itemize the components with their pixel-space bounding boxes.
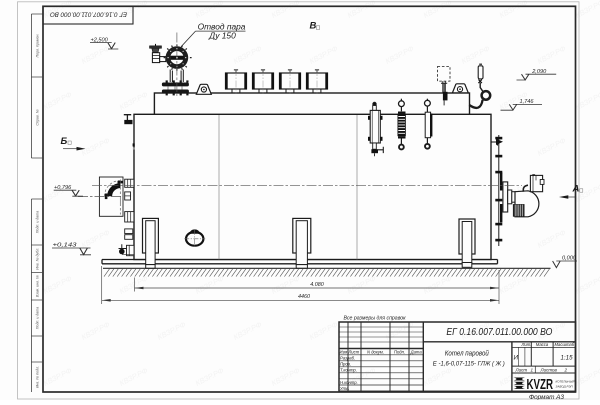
svg-text:Все размеры для справок: Все размеры для справок <box>344 315 407 321</box>
svg-text:КОТЕЛЬНЫЙ: КОТЕЛЬНЫЙ <box>556 379 576 383</box>
svg-text:+0,143: +0,143 <box>53 243 78 249</box>
svg-text:0,000: 0,000 <box>562 255 577 261</box>
svg-text:Утв.: Утв. <box>340 386 350 391</box>
svg-text:Лит.: Лит. <box>521 342 532 347</box>
svg-text:Дата: Дата <box>410 349 423 354</box>
svg-text:N докум.: N докум. <box>367 349 384 354</box>
svg-text:В: В <box>310 21 317 32</box>
svg-text:Ду 150: Ду 150 <box>208 31 236 41</box>
svg-text:ЗАВОД РЭП: ЗАВОД РЭП <box>556 384 574 388</box>
svg-text:1,746: 1,746 <box>520 99 535 105</box>
svg-text:Разраб.: Разраб. <box>340 356 355 361</box>
svg-text:И: И <box>514 355 519 362</box>
svg-text:Подп. и дата: Подп. и дата <box>36 307 40 330</box>
svg-text:Перв. примен.: Перв. примен. <box>36 34 40 58</box>
svg-text:Инв. № дубл.: Инв. № дубл. <box>36 248 40 270</box>
svg-text:ЕГ 0.16.007.011.00.000 ВО: ЕГ 0.16.007.011.00.000 ВО <box>50 11 127 18</box>
svg-text:Лист: Лист <box>515 368 528 373</box>
svg-text:Формат А3: Формат А3 <box>529 394 564 400</box>
svg-text:2: 2 <box>564 368 568 373</box>
svg-text:Масса: Масса <box>536 342 549 347</box>
svg-text:Е -1,6-0,07-115- ГЛЖ ( Ж ): Е -1,6-0,07-115- ГЛЖ ( Ж ) <box>433 361 505 368</box>
svg-text:Т.контр.: Т.контр. <box>340 368 357 373</box>
svg-text:Подп. и дата: Подп. и дата <box>36 211 40 234</box>
svg-text:Котел паровой: Котел паровой <box>445 350 489 358</box>
svg-text:А: А <box>572 184 580 195</box>
svg-text:Справ. №: Справ. № <box>36 109 40 125</box>
svg-text:Пров.: Пров. <box>340 362 351 367</box>
svg-text:Инв. № подл.: Инв. № подл. <box>36 366 40 388</box>
svg-text:Изм Лист: Изм Лист <box>340 349 360 354</box>
svg-text:4.080: 4.080 <box>310 282 324 288</box>
svg-text:Н.контр.: Н.контр. <box>340 380 358 385</box>
svg-text:1:15: 1:15 <box>560 355 573 362</box>
svg-text:KVZR: KVZR <box>527 377 554 393</box>
svg-text:Листов: Листов <box>540 368 558 373</box>
svg-text:Подп.: Подп. <box>394 349 405 354</box>
svg-text:Взам. инв. №: Взам. инв. № <box>36 275 40 297</box>
svg-text:ЕГ 0.16.007.011.00.000 ВО: ЕГ 0.16.007.011.00.000 ВО <box>446 326 552 338</box>
svg-text:Б: Б <box>61 136 68 147</box>
svg-text:2,090: 2,090 <box>531 69 547 75</box>
svg-text:+0,796: +0,796 <box>54 185 72 191</box>
svg-text:Масштаб: Масштаб <box>555 342 575 347</box>
svg-text:+2,500: +2,500 <box>91 37 109 43</box>
svg-text:4460: 4460 <box>298 294 310 300</box>
